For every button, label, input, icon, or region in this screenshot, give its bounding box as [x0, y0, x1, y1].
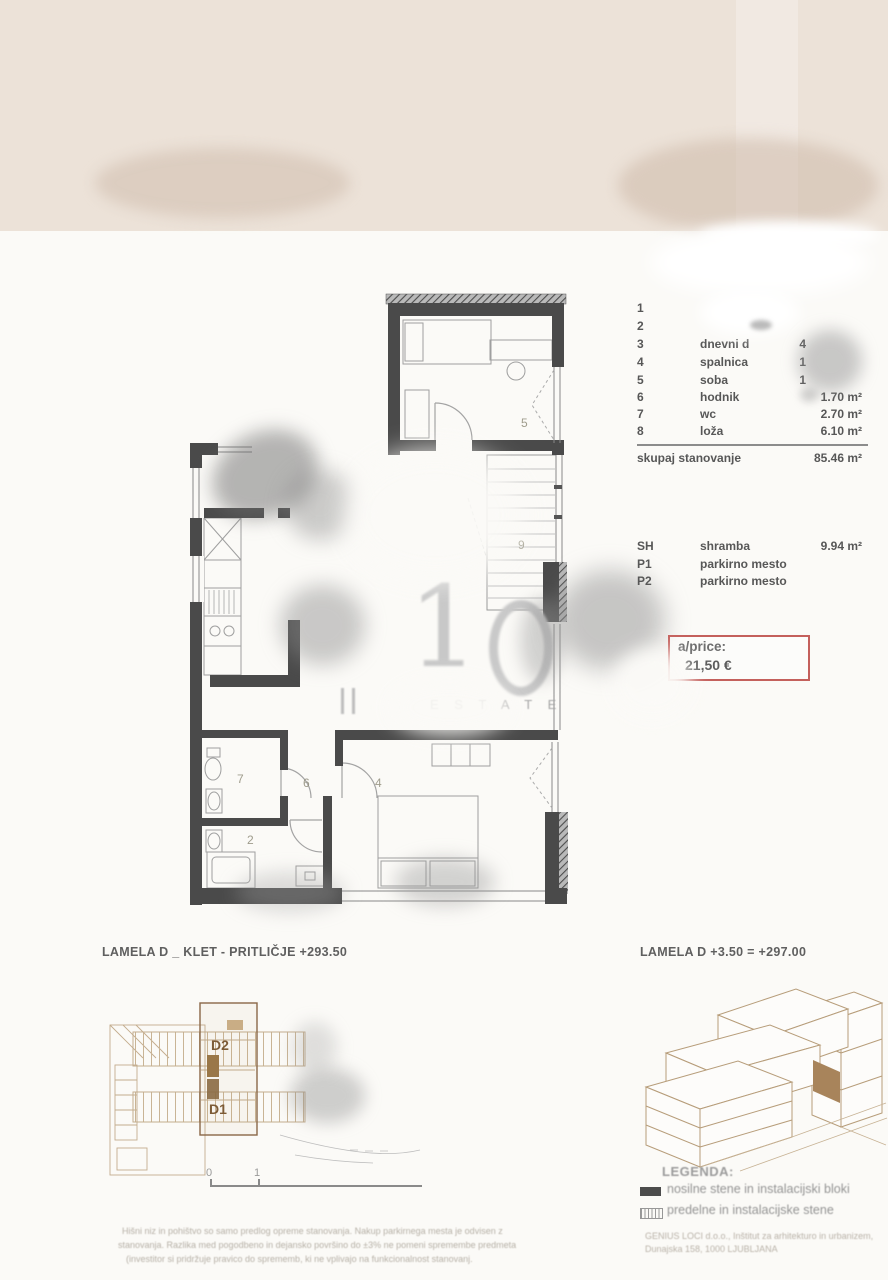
- key-plan: D2 D1: [95, 1000, 425, 1195]
- row-no: 2: [637, 320, 644, 333]
- row-area: 6.10 m²: [821, 425, 862, 438]
- unit-label-d2: D2: [211, 1037, 229, 1053]
- watermark-bar: [341, 688, 344, 714]
- scale-tick: [210, 1179, 212, 1187]
- room-number-9: 9: [518, 538, 525, 552]
- disclaimer-line-2: stanovanja. Razlika med pogodbeno in dej…: [118, 1238, 516, 1252]
- row-no: 3: [637, 338, 644, 351]
- row-name: dnevni d: [700, 338, 749, 351]
- price-label: a/price:: [678, 639, 726, 654]
- company-line-1: GENIUS LOCI d.o.o., Inštitut za arhitekt…: [645, 1230, 873, 1243]
- smudge-blob: [750, 320, 772, 330]
- row-name: soba: [700, 374, 728, 387]
- room-number-7: 7: [237, 772, 244, 786]
- total-area: 85.46 m²: [814, 452, 862, 465]
- price-box: a/price: 21,50 €: [668, 635, 810, 681]
- scale-zero: 0: [206, 1167, 212, 1179]
- extra-name: shramba: [700, 540, 750, 553]
- row-name: wc: [700, 408, 716, 421]
- row-no: 8: [637, 425, 644, 438]
- extra-code: SH: [637, 540, 654, 553]
- row-no: 4: [637, 356, 644, 369]
- keyplan-roads: [280, 1135, 420, 1163]
- keyplan-highlight-unit: D2 D1: [200, 1003, 257, 1135]
- axon-boxes: [646, 989, 882, 1167]
- room-number-6: 6: [303, 776, 310, 790]
- row-area: 1.70 m²: [821, 391, 862, 404]
- row-area: 4: [799, 338, 862, 351]
- legend-item-1: nosilne stene in instalacijski bloki: [667, 1182, 850, 1196]
- smudge-blob: [800, 388, 818, 402]
- row-name: loža: [700, 425, 723, 438]
- legend-swatch-solid: [640, 1187, 661, 1196]
- watermark-digit: 1: [408, 572, 479, 684]
- price-value: 21,50 €: [685, 657, 732, 673]
- unit-label-d1: D1: [209, 1101, 227, 1117]
- room-number-4: 4: [375, 776, 382, 790]
- row-no: 5: [637, 374, 644, 387]
- row-area: 1: [799, 374, 862, 387]
- disclaimer-line-3: (investitor si pridržuje pravico do spre…: [126, 1252, 473, 1266]
- row-no: 6: [637, 391, 644, 404]
- table-rule: [637, 444, 868, 446]
- watermark-estate-text: E S T A T E: [430, 697, 562, 712]
- room-number-5: 5: [521, 416, 528, 430]
- legend-swatch-hatched: [640, 1208, 663, 1219]
- row-no: 7: [637, 408, 644, 421]
- scale-line: [210, 1185, 422, 1187]
- header-band-light-strip: [736, 0, 798, 231]
- extra-area: 9.94 m²: [821, 540, 862, 553]
- row-no: 1: [637, 302, 644, 315]
- scanned-floorplan-page: 5 9 7 6 2 4 1 E S T A T E 1 2 3 dnevni d…: [0, 0, 888, 1280]
- legend-title: LEGENDA:: [662, 1164, 734, 1179]
- company-line-2: Dunajska 158, 1000 LJUBLJANA: [645, 1243, 778, 1256]
- scale-one: 1: [254, 1167, 260, 1179]
- stairs-dashed-line: [468, 498, 486, 556]
- total-label: skupaj stanovanje: [637, 452, 741, 465]
- room-number-2: 2: [247, 833, 254, 847]
- axonometric-view: [640, 975, 888, 1175]
- row-area: 2.70 m²: [821, 408, 862, 421]
- white-smudge: [650, 230, 870, 295]
- row-area: 1: [799, 356, 862, 369]
- watermark-bar: [352, 688, 355, 714]
- row-name: spalnica: [700, 356, 748, 369]
- white-smudge: [700, 290, 800, 335]
- extra-code: P2: [637, 575, 652, 588]
- watermark-letter-o: [489, 600, 553, 696]
- row-name: hodnik: [700, 391, 739, 404]
- furniture: [204, 320, 552, 888]
- keyplan-title: LAMELA D _ KLET - PRITLIČJE +293.50: [102, 945, 347, 959]
- disclaimer-line-1: Hišni niz in pohištvo so samo predlog op…: [122, 1224, 503, 1238]
- legend-item-2: predelne in instalacijske stene: [667, 1203, 834, 1217]
- extra-code: P1: [637, 558, 652, 571]
- walls: [190, 294, 568, 905]
- extra-name: parkirno mesto: [700, 558, 787, 571]
- axon-title: LAMELA D +3.50 = +297.00: [640, 945, 806, 959]
- extra-name: parkirno mesto: [700, 575, 787, 588]
- scale-tick: [258, 1179, 260, 1187]
